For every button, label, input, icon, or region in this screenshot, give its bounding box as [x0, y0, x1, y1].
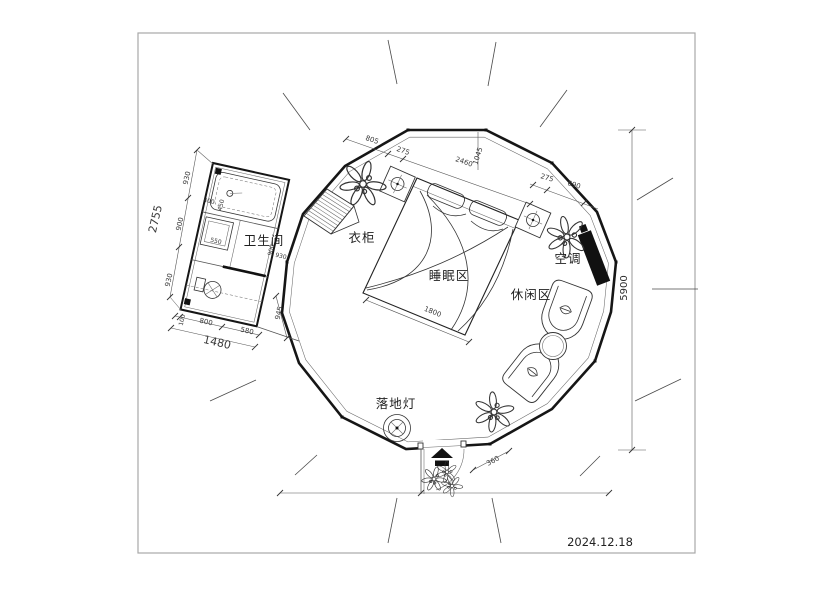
label-sleeping-area: 睡眠区 [429, 268, 470, 283]
label-ac: 空调 [554, 251, 581, 266]
floorplan-canvas: 卫生间 衣柜 睡眠区 休闲区 空调 落地灯 805 275 2460 1045 … [0, 0, 837, 592]
label-bathroom: 卫生间 [244, 233, 285, 248]
dim-overall-5900: 5900 [619, 275, 630, 300]
side-table-icon [540, 333, 567, 360]
date-stamp: 2024.12.18 [567, 535, 633, 549]
floorplan-page: 卫生间 衣柜 睡眠区 休闲区 空调 落地灯 805 275 2460 1045 … [0, 0, 837, 592]
label-floor-lamp: 落地灯 [376, 396, 417, 411]
label-wardrobe: 衣柜 [348, 230, 375, 245]
label-leisure-area: 休闲区 [511, 287, 552, 302]
